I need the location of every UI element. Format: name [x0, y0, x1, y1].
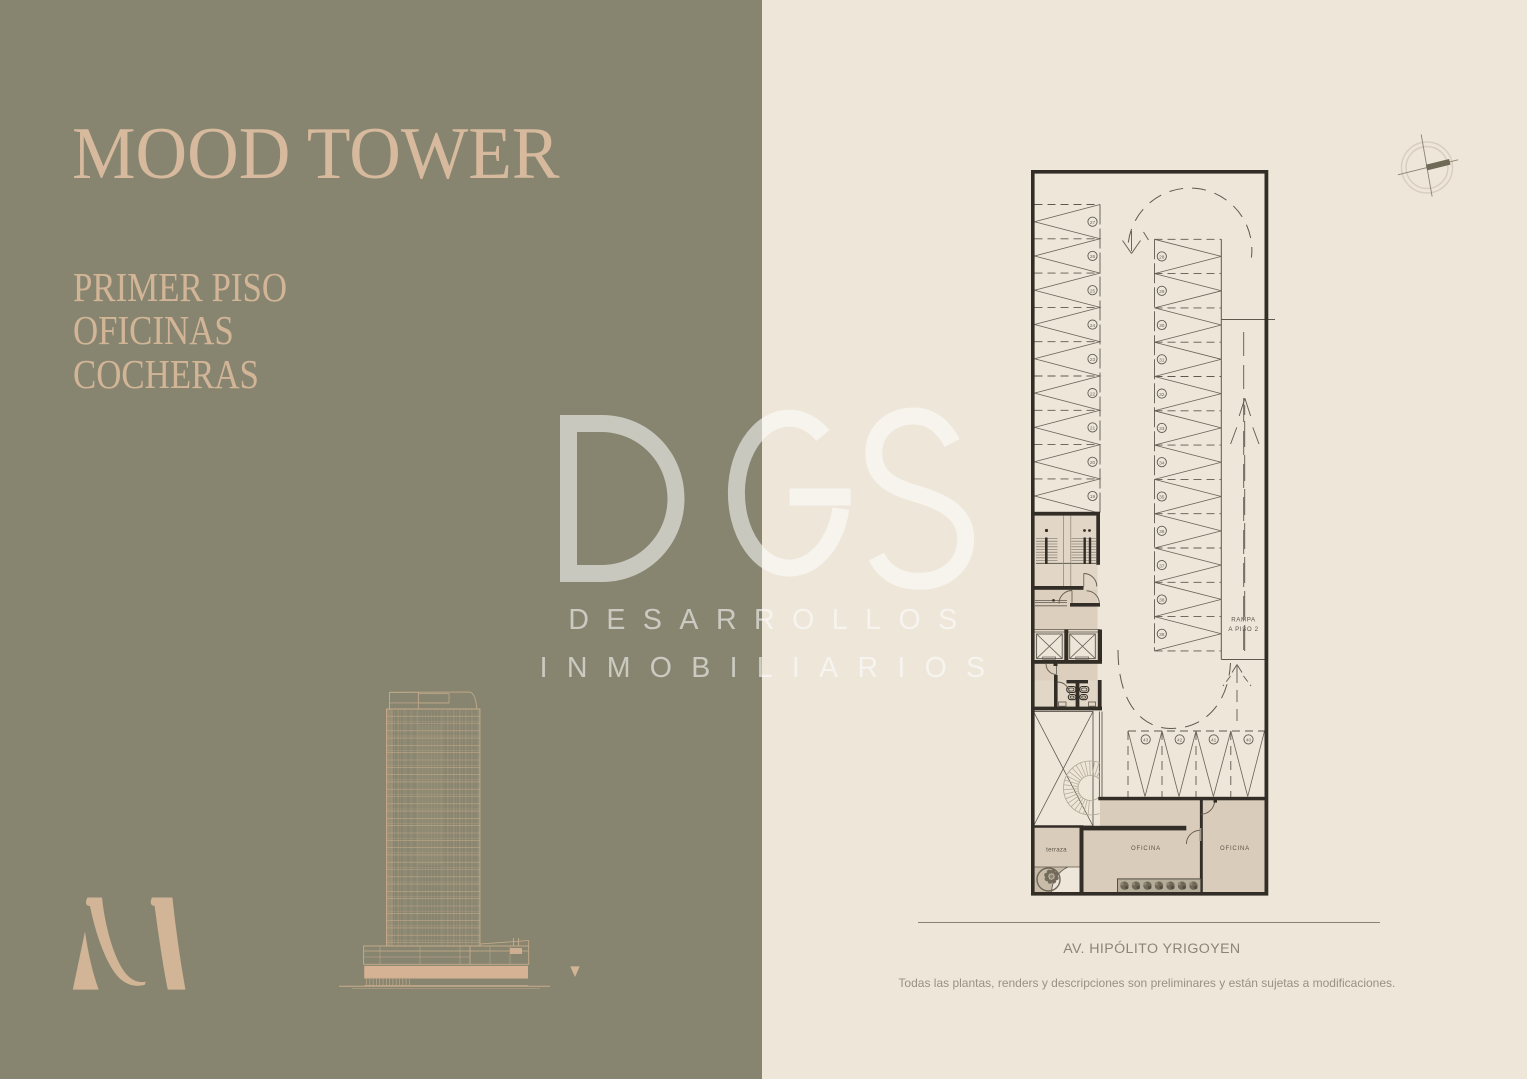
- svg-text:31: 31: [1159, 358, 1165, 364]
- svg-text:26: 26: [1090, 254, 1096, 260]
- svg-text:OFICINA: OFICINA: [1220, 846, 1250, 852]
- svg-text:33: 33: [1159, 426, 1165, 432]
- svg-text:28: 28: [1159, 255, 1165, 261]
- svg-text:29: 29: [1159, 289, 1165, 295]
- svg-text:27: 27: [1090, 220, 1096, 226]
- svg-text:32: 32: [1159, 392, 1165, 398]
- svg-text:34: 34: [1159, 460, 1165, 466]
- svg-text:20: 20: [1090, 460, 1096, 466]
- svg-text:30: 30: [1159, 323, 1165, 329]
- svg-text:19: 19: [1090, 494, 1096, 500]
- svg-text:38: 38: [1159, 598, 1165, 604]
- svg-text:42: 42: [1177, 738, 1183, 744]
- svg-text:40: 40: [1246, 738, 1252, 744]
- svg-text:24: 24: [1090, 323, 1096, 329]
- svg-text:36: 36: [1159, 529, 1165, 535]
- svg-text:39: 39: [1159, 632, 1165, 638]
- svg-text:22: 22: [1090, 391, 1096, 397]
- svg-text:RAMPA: RAMPA: [1231, 617, 1256, 624]
- svg-text:35: 35: [1159, 495, 1165, 501]
- svg-text:37: 37: [1159, 563, 1165, 569]
- svg-text:43: 43: [1143, 738, 1149, 744]
- svg-text:A PISO 2: A PISO 2: [1228, 626, 1258, 633]
- svg-text:terraza: terraza: [1046, 847, 1067, 854]
- svg-text:21: 21: [1090, 426, 1096, 432]
- svg-text:OFICINA: OFICINA: [1131, 846, 1161, 852]
- svg-text:25: 25: [1090, 288, 1096, 294]
- svg-text:23: 23: [1090, 357, 1096, 363]
- svg-text:41: 41: [1211, 738, 1217, 744]
